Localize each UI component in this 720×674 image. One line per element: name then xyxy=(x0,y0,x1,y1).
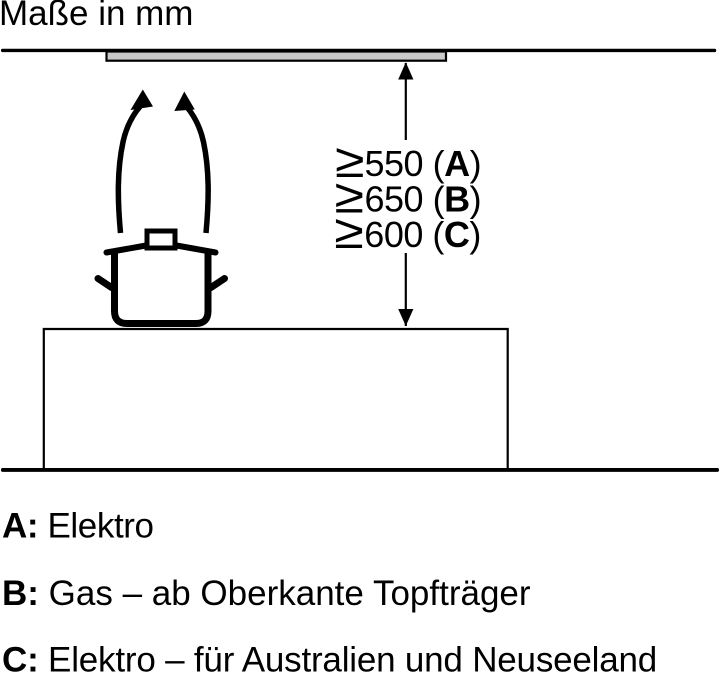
svg-text:Maße in mm: Maße in mm xyxy=(0,0,193,33)
svg-text:600 (C): 600 (C) xyxy=(364,214,481,255)
svg-text:≥: ≥ xyxy=(334,206,364,259)
svg-text:A: Elektro: A: Elektro xyxy=(2,507,154,546)
svg-text:B: Gas – ab Oberkante Topfträg: B: Gas – ab Oberkante Topfträger xyxy=(2,574,531,613)
svg-text:C: Elektro – für Australien un: C: Elektro – für Australien und Neuseela… xyxy=(2,641,657,674)
